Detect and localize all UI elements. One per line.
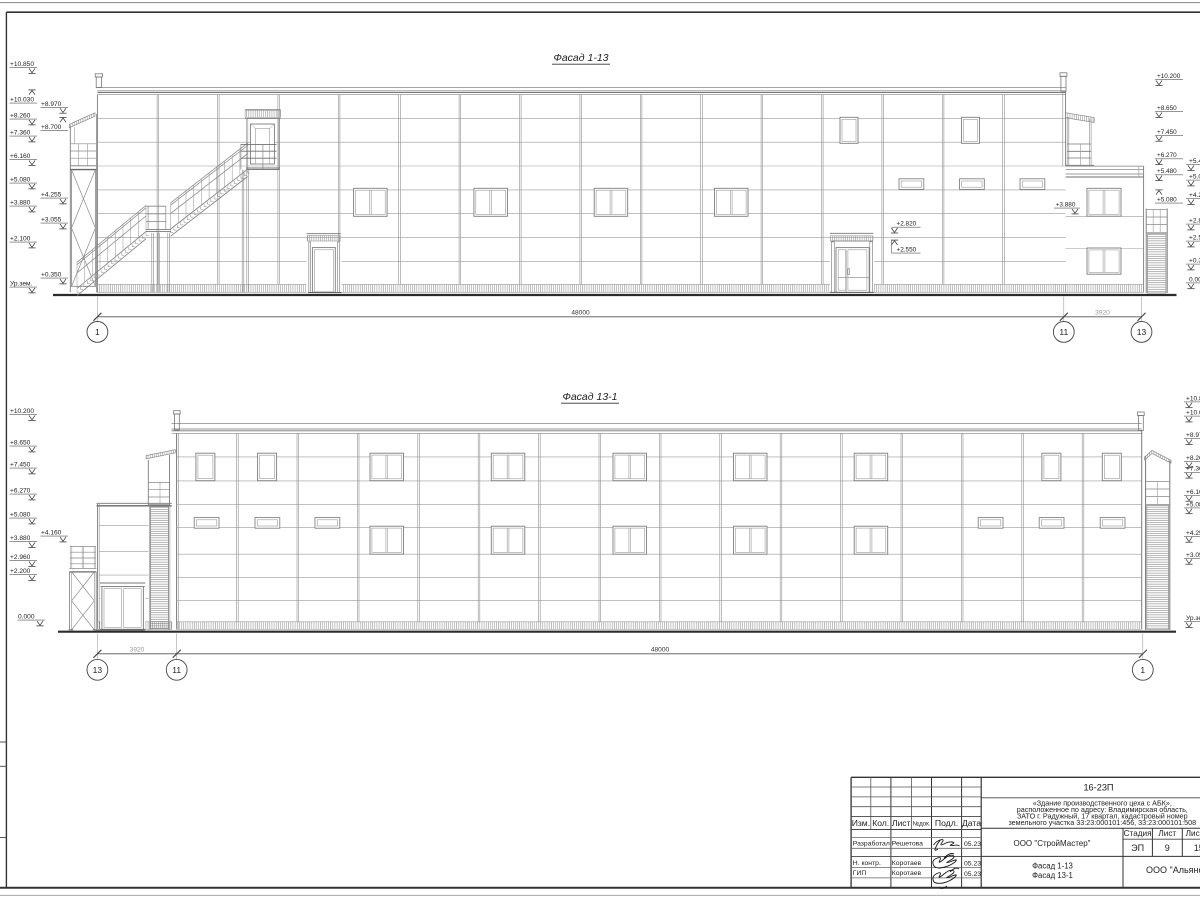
svg-text:Подл.: Подл. (935, 818, 958, 828)
svg-text:0.000: 0.000 (1189, 276, 1200, 283)
svg-text:+8.970: +8.970 (41, 101, 62, 108)
svg-text:+8.970: +8.970 (1186, 432, 1200, 439)
svg-text:Фасад 1-13: Фасад 1-13 (1032, 862, 1073, 871)
svg-text:№док.: №док. (912, 820, 930, 827)
svg-text:+4.255: +4.255 (1189, 192, 1200, 199)
svg-text:1: 1 (1140, 665, 1145, 675)
svg-text:+0.350: +0.350 (41, 272, 62, 279)
svg-text:05.23: 05.23 (964, 871, 981, 878)
svg-text:+10.850: +10.850 (1186, 395, 1200, 402)
svg-text:+4.160: +4.160 (41, 530, 62, 537)
svg-text:13: 13 (93, 665, 103, 675)
svg-text:Фасад 1-13: Фасад 1-13 (553, 52, 608, 64)
svg-text:ООО "Альянс": ООО "Альянс" (1146, 865, 1200, 875)
svg-text:+8.260: +8.260 (1186, 455, 1200, 462)
svg-text:+3.880: +3.880 (1056, 202, 1076, 209)
svg-text:05.23: 05.23 (964, 861, 981, 868)
svg-text:3920: 3920 (1095, 310, 1110, 317)
svg-text:+3.055: +3.055 (41, 217, 62, 224)
svg-text:+5.080: +5.080 (1186, 501, 1200, 508)
svg-text:ООО "СтройМастер": ООО "СтройМастер" (1013, 839, 1090, 848)
svg-text:+2.200: +2.200 (10, 568, 31, 575)
svg-text:+2.550: +2.550 (897, 247, 917, 254)
svg-text:+10.850: +10.850 (10, 61, 34, 68)
svg-text:+8.700: +8.700 (41, 124, 62, 131)
svg-text:Коротаев: Коротаев (892, 860, 922, 867)
svg-text:+5.080: +5.080 (10, 177, 31, 184)
svg-text:+2.550: +2.550 (1189, 235, 1200, 242)
svg-text:Лист: Лист (892, 818, 911, 828)
svg-text:+4.255: +4.255 (41, 192, 62, 199)
svg-text:+3.880: +3.880 (10, 200, 31, 207)
svg-text:+5.080: +5.080 (1189, 174, 1200, 181)
svg-text:+8.260: +8.260 (10, 113, 31, 120)
svg-text:Ур.зем.: Ур.зем. (10, 281, 33, 288)
svg-text:48000: 48000 (571, 310, 590, 317)
svg-text:11: 11 (172, 665, 181, 675)
svg-text:Лист: Лист (1158, 829, 1176, 838)
svg-text:0.000: 0.000 (18, 614, 35, 621)
svg-text:+3.880: +3.880 (10, 535, 31, 542)
svg-text:+8.650: +8.650 (10, 440, 31, 447)
svg-text:+5.480: +5.480 (1189, 158, 1200, 165)
svg-text:13: 13 (1137, 327, 1147, 337)
svg-text:+7.450: +7.450 (10, 462, 31, 469)
svg-text:+6.270: +6.270 (10, 488, 31, 495)
svg-text:+6.160: +6.160 (1186, 489, 1200, 496)
svg-text:+5.080: +5.080 (10, 512, 31, 519)
svg-text:3920: 3920 (130, 647, 145, 654)
svg-text:+10.200: +10.200 (10, 408, 34, 415)
svg-text:Разработал: Разработал (853, 839, 890, 847)
svg-text:Листы: Листы (1186, 829, 1200, 838)
svg-text:Дата: Дата (962, 818, 981, 828)
svg-text:+2.820: +2.820 (897, 221, 917, 228)
svg-text:+10.200: +10.200 (1157, 73, 1181, 80)
svg-text:+6.270: +6.270 (1157, 152, 1177, 159)
svg-text:05.23: 05.23 (964, 841, 981, 848)
svg-text:Фасад 13-1: Фасад 13-1 (562, 391, 617, 403)
svg-text:1: 1 (95, 327, 100, 337)
svg-text:Стадия: Стадия (1124, 829, 1152, 838)
svg-text:+10.030: +10.030 (1186, 410, 1200, 417)
svg-text:9: 9 (1165, 843, 1170, 853)
svg-text:Ур.зем.: Ур.зем. (1186, 615, 1200, 622)
svg-text:+7.360: +7.360 (1186, 466, 1200, 473)
svg-text:11: 11 (1059, 327, 1068, 337)
svg-text:+7.360: +7.360 (10, 130, 31, 137)
svg-text:+10.030: +10.030 (10, 97, 34, 104)
svg-text:ГИП: ГИП (853, 870, 867, 877)
svg-text:Кол.: Кол. (872, 818, 889, 828)
svg-text:48000: 48000 (651, 647, 670, 654)
svg-text:+4.255: +4.255 (1186, 530, 1200, 537)
svg-text:Решетова: Решетова (892, 840, 923, 847)
svg-text:+5.480: +5.480 (1157, 168, 1177, 175)
svg-text:+6.160: +6.160 (10, 153, 31, 160)
svg-text:+2.960: +2.960 (10, 554, 31, 561)
svg-text:+7.450: +7.450 (1157, 129, 1177, 136)
svg-text:Изм.: Изм. (852, 818, 870, 828)
svg-text:+2.100: +2.100 (10, 236, 31, 243)
svg-text:+2.820: +2.820 (1189, 218, 1200, 225)
svg-text:Фасад 13-1: Фасад 13-1 (1032, 871, 1073, 880)
svg-text:Коротаев: Коротаев (892, 870, 922, 877)
svg-text:16-23П: 16-23П (1083, 783, 1113, 793)
svg-text:Н. контр.: Н. контр. (853, 860, 881, 867)
svg-text:15: 15 (1194, 843, 1200, 853)
svg-text:+0.350: +0.350 (1189, 258, 1200, 265)
svg-text:+3.055: +3.055 (1186, 552, 1200, 559)
svg-text:+8.650: +8.650 (1157, 105, 1177, 112)
svg-text:земельного участка 33:23:00010: земельного участка 33:23:000101:456, 33:… (1008, 818, 1196, 827)
svg-text:ЭП: ЭП (1131, 843, 1144, 853)
svg-text:+5.080: +5.080 (1157, 197, 1177, 204)
